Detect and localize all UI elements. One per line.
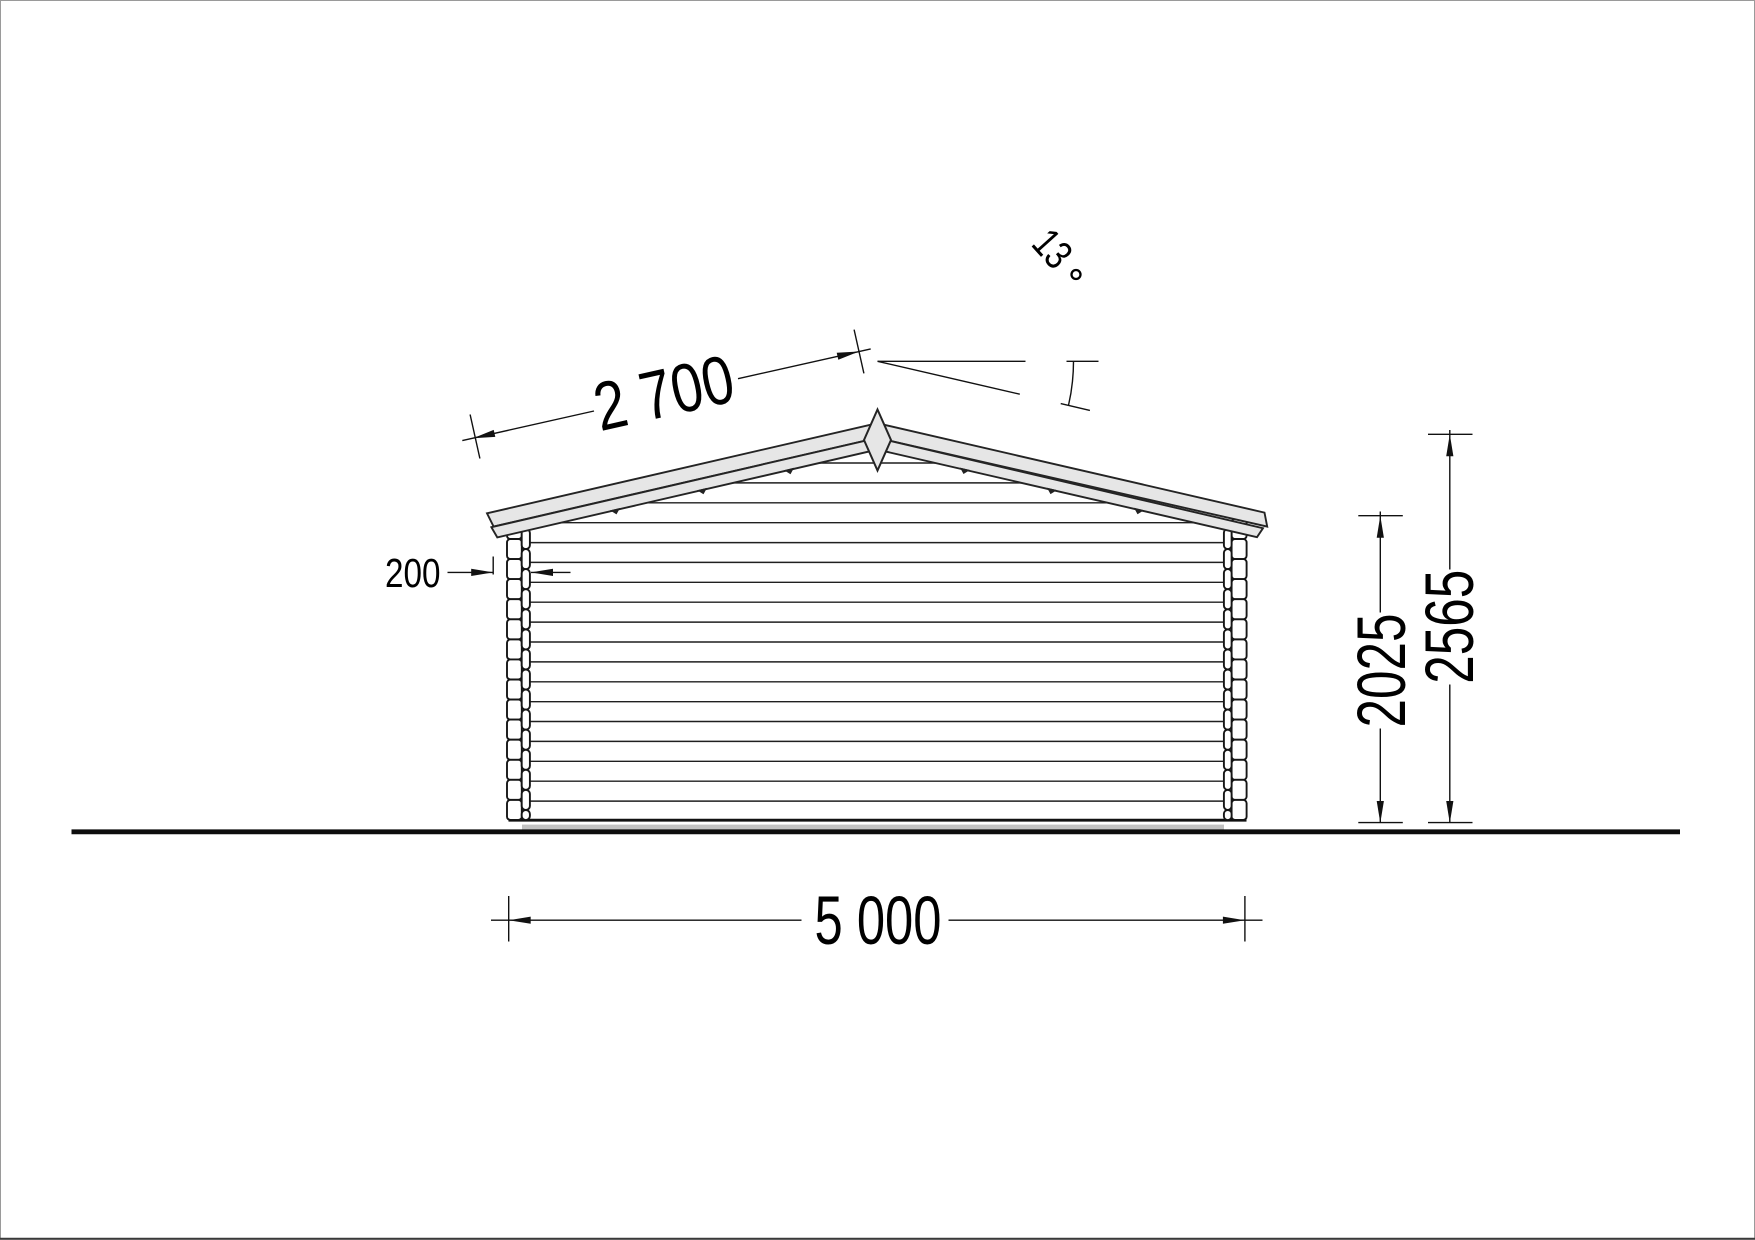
svg-text:2025: 2025 <box>1343 614 1420 728</box>
svg-text:5 000: 5 000 <box>815 882 942 959</box>
svg-text:2565: 2565 <box>1411 570 1488 684</box>
svg-text:200: 200 <box>385 550 441 596</box>
